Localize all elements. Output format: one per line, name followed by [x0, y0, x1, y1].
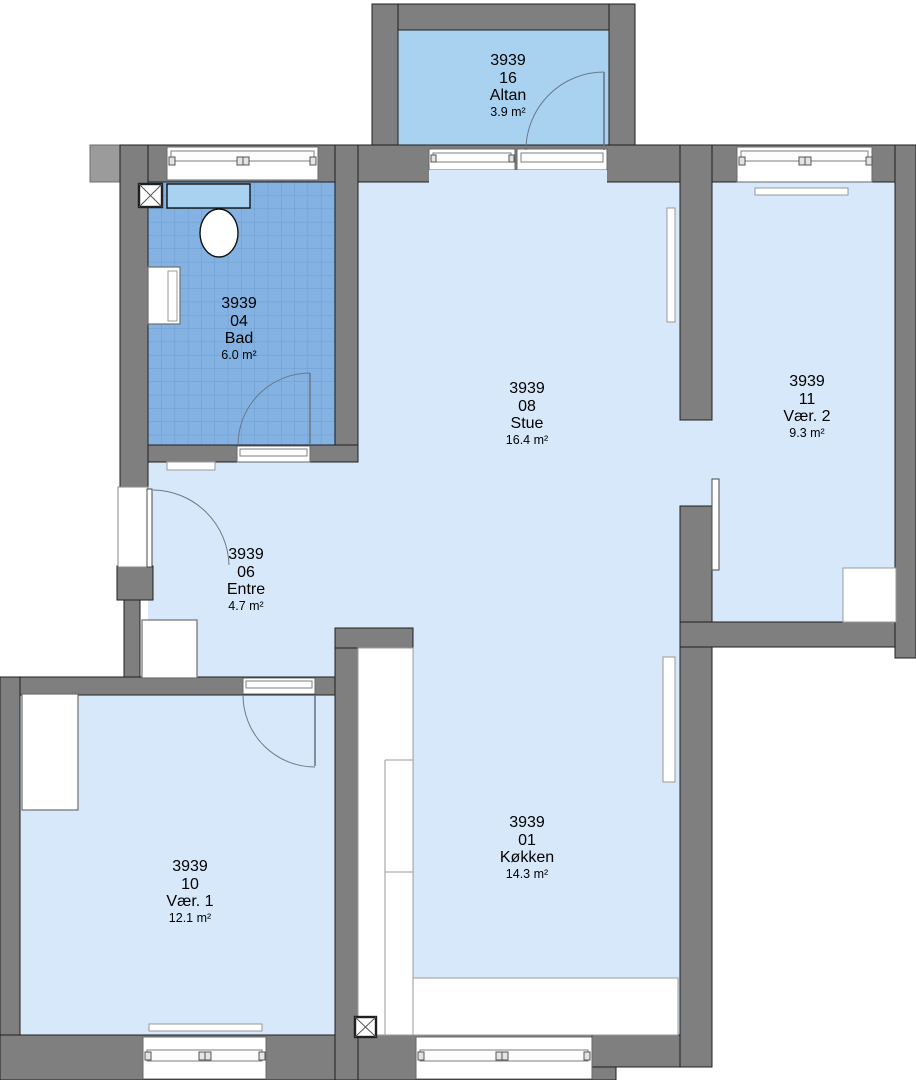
- wall-kokken-stub: [335, 628, 413, 648]
- window-vaer2: [737, 147, 872, 182]
- vaer2-corner-closet: [843, 568, 896, 622]
- door-leaf-vaer2-open: [712, 479, 719, 570]
- kitchen-counter-bottom: [413, 978, 678, 1035]
- floor-bridge-altan: [429, 170, 607, 183]
- wall-left-step: [117, 566, 153, 600]
- window-vaer1: [143, 1037, 266, 1079]
- room-name: Bad: [221, 330, 257, 348]
- room-number: 01: [500, 832, 554, 850]
- room-area: 16.4 m²: [506, 433, 548, 448]
- shaft-x-icon: [139, 184, 162, 207]
- room-name: Vær. 2: [783, 408, 830, 426]
- wall-altan-right: [609, 4, 635, 152]
- wall-left-mid: [124, 600, 140, 678]
- wall-cap: [90, 145, 120, 182]
- vaer1-radiator: [149, 1024, 262, 1031]
- wall-altan-left: [372, 4, 398, 152]
- room-name: Altan: [490, 87, 526, 105]
- room-area: 12.1 m²: [166, 911, 213, 926]
- kokken-radiator: [663, 657, 675, 782]
- stue-radiator: [667, 208, 675, 322]
- room-area: 4.7 m²: [227, 599, 265, 614]
- room-label-vaer2: 3939 11 Vær. 2 9.3 m²: [783, 373, 830, 441]
- floor-plan-drawing: [0, 0, 916, 1080]
- room-label-bad: 3939 04 Bad 6.0 m²: [221, 295, 257, 363]
- room-label-altan: 3939 16 Altan 3.9 m²: [490, 52, 526, 120]
- kitchen-counter-left: [358, 648, 413, 1035]
- wall-altan-top: [372, 4, 635, 30]
- room-area: 6.0 m²: [221, 348, 257, 363]
- room-number: 10: [166, 876, 213, 894]
- room-label-entre: 3939 06 Entre 4.7 m²: [227, 546, 265, 614]
- room-label-vaer1: 3939 10 Vær. 1 12.1 m²: [166, 858, 213, 926]
- room-number: 06: [227, 564, 265, 582]
- wall-stue-vaer2-upper: [680, 145, 712, 420]
- window-bad: [167, 147, 318, 180]
- wall-stue-vaer2-lower: [680, 506, 712, 1067]
- room-id: 3939: [490, 52, 526, 70]
- shaft-x-icon: [355, 1017, 376, 1037]
- door-opening-entry: [118, 487, 148, 567]
- door-threshold-bad: [237, 446, 310, 462]
- sink-icon: [148, 267, 180, 324]
- room-number: 11: [783, 391, 830, 409]
- room-name: Vær. 1: [166, 893, 213, 911]
- room-label-stue: 3939 08 Stue 16.4 m²: [506, 380, 548, 448]
- room-name: Stue: [506, 415, 548, 433]
- room-id: 3939: [783, 373, 830, 391]
- door-threshold-altan: [517, 149, 607, 170]
- wall-right-outer: [895, 145, 916, 658]
- room-number: 08: [506, 398, 548, 416]
- room-number: 16: [490, 70, 526, 88]
- vaer1-closet: [22, 694, 78, 810]
- window-kokken: [416, 1037, 592, 1079]
- room-name: Entre: [227, 581, 265, 599]
- room-area: 9.3 m²: [783, 426, 830, 441]
- vaer2-radiator: [755, 188, 848, 195]
- room-area: 14.3 m²: [500, 867, 554, 882]
- door-threshold-vaer1: [243, 678, 315, 694]
- entre-cabinet: [142, 620, 197, 678]
- wall-bad-right: [335, 145, 358, 462]
- room-area: 3.9 m²: [490, 105, 526, 120]
- room-id: 3939: [221, 295, 257, 313]
- wall-left-lower: [0, 677, 20, 1080]
- room-number: 04: [221, 313, 257, 331]
- room-id: 3939: [166, 858, 213, 876]
- wall-vaer2-bottom: [680, 622, 916, 647]
- floor-plan: 3939 16 Altan 3.9 m² 3939 04 Bad 6.0 m² …: [0, 0, 916, 1080]
- room-name: Køkken: [500, 849, 554, 867]
- room-label-kokken: 3939 01 Køkken 14.3 m²: [500, 814, 554, 882]
- room-id: 3939: [500, 814, 554, 832]
- entre-shelf: [167, 462, 215, 470]
- window-altan: [429, 149, 515, 170]
- room-id: 3939: [506, 380, 548, 398]
- wall-kokken-left: [335, 628, 358, 1080]
- room-id: 3939: [227, 546, 265, 564]
- floor-passage-stue-vaer2: [680, 420, 712, 506]
